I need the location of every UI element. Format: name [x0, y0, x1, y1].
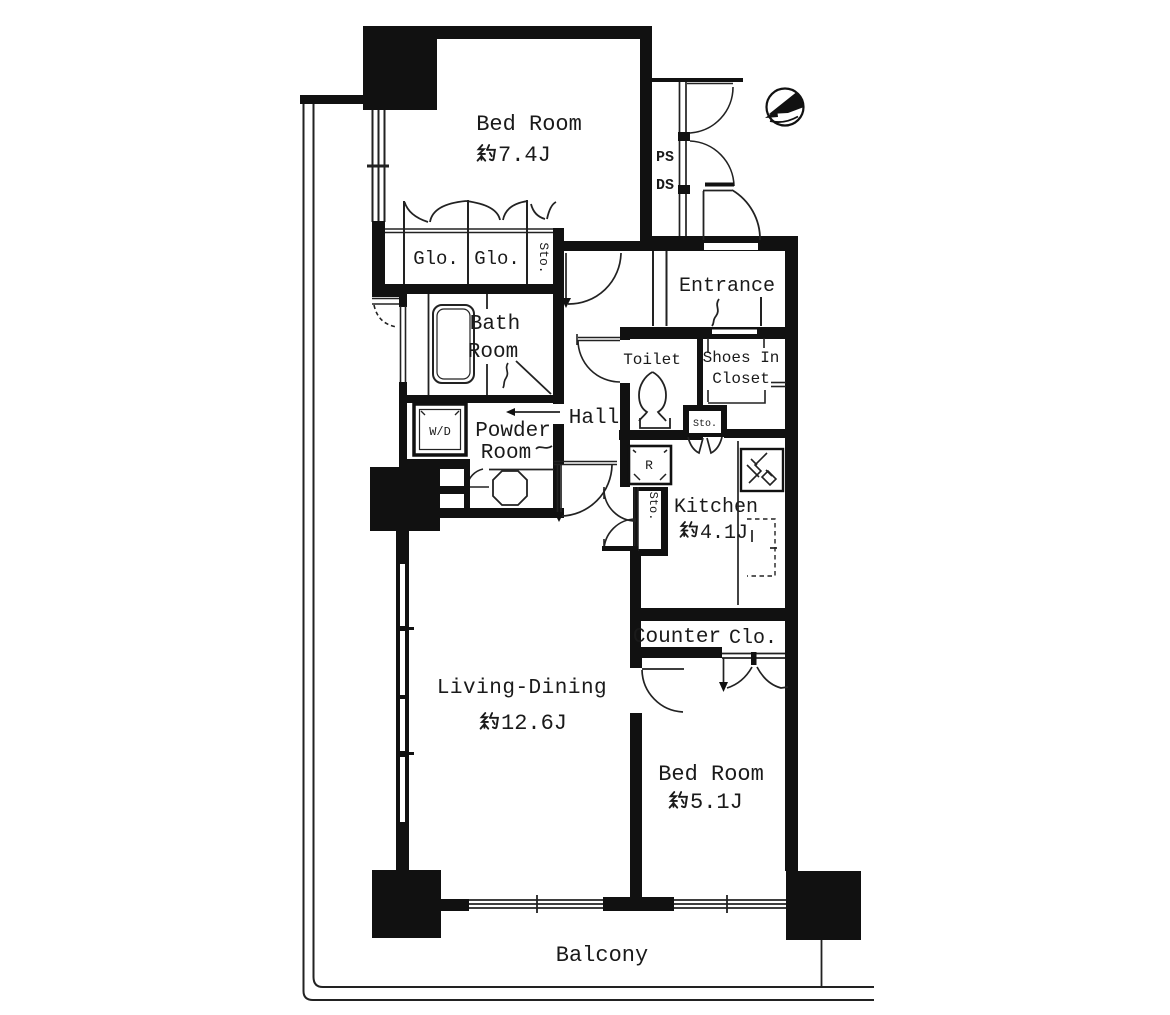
svg-text:Room: Room: [468, 341, 518, 364]
svg-text:Bath: Bath: [470, 313, 520, 336]
svg-text:7.4J: 7.4J: [498, 143, 551, 168]
svg-text:Balcony: Balcony: [556, 943, 648, 968]
svg-text:4.1J: 4.1J: [700, 522, 748, 545]
svg-text:Room: Room: [481, 442, 531, 465]
svg-text:Sto.: Sto.: [646, 492, 660, 521]
svg-text:Living-Dining: Living-Dining: [437, 677, 607, 700]
svg-text:Clo.: Clo.: [729, 627, 777, 650]
svg-text:Bed Room: Bed Room: [658, 762, 764, 787]
svg-text:5.1J: 5.1J: [690, 790, 743, 815]
svg-text:Sto.: Sto.: [693, 419, 717, 430]
svg-text:Toilet: Toilet: [623, 351, 681, 369]
svg-text:12.6J: 12.6J: [501, 711, 567, 736]
svg-text:Bed Room: Bed Room: [476, 112, 582, 137]
svg-text:Hall: Hall: [569, 407, 619, 430]
svg-text:Shoes In: Shoes In: [703, 349, 780, 367]
svg-text:W/D: W/D: [429, 425, 451, 439]
svg-text:Powder: Powder: [475, 420, 551, 443]
svg-text:Closet: Closet: [712, 370, 770, 388]
svg-text:DS: DS: [656, 177, 674, 194]
svg-text:PS: PS: [656, 149, 674, 166]
svg-text:R: R: [645, 458, 653, 473]
svg-text:Glo.: Glo.: [413, 248, 459, 270]
svg-text:Kitchen: Kitchen: [674, 496, 758, 519]
svg-text:Sto.: Sto.: [536, 242, 551, 273]
svg-text:Counter: Counter: [633, 626, 721, 649]
svg-text:Glo.: Glo.: [474, 248, 520, 270]
svg-text:Entrance: Entrance: [679, 275, 775, 298]
